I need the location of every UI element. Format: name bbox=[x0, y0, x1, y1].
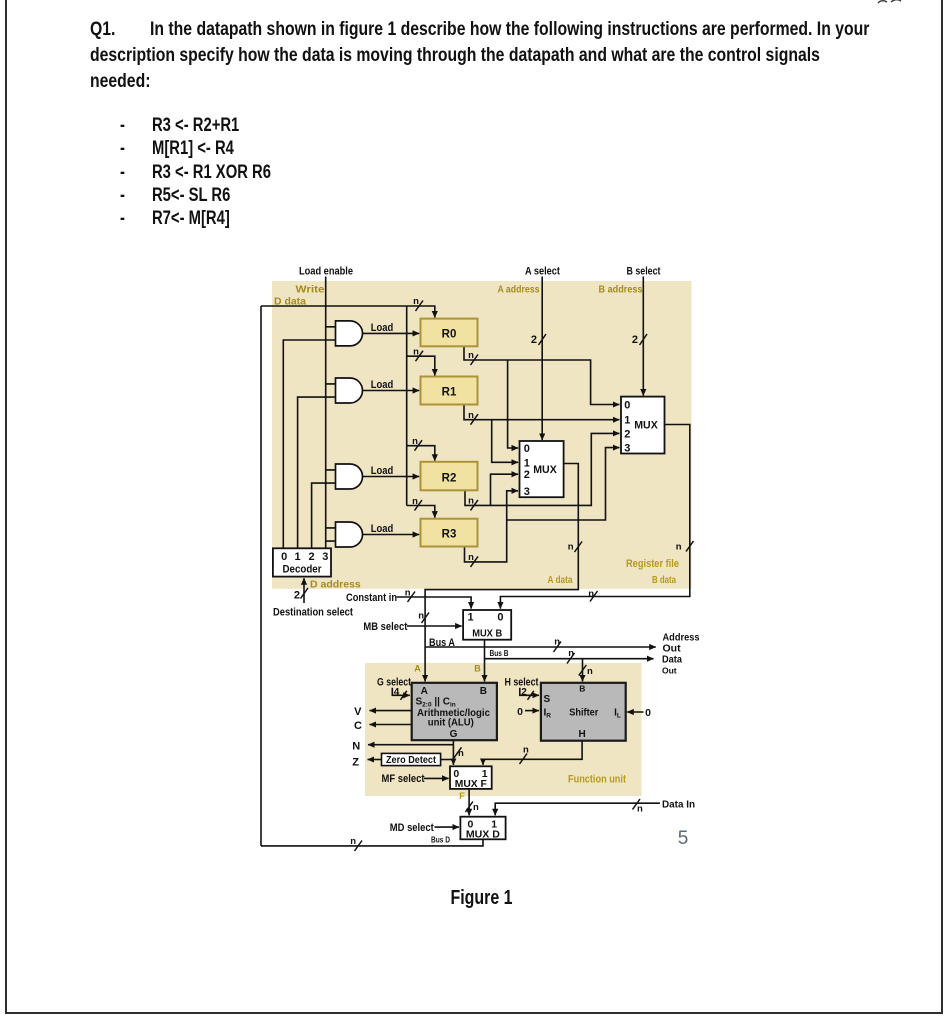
svg-text:B select: B select bbox=[627, 266, 661, 278]
svg-text:R0: R0 bbox=[442, 328, 457, 340]
svg-text:Load: Load bbox=[371, 523, 394, 535]
svg-text:R3: R3 bbox=[442, 529, 457, 541]
svg-text:D address: D address bbox=[310, 579, 361, 591]
svg-text:A: A bbox=[421, 686, 428, 697]
svg-text:0: 0 bbox=[624, 400, 630, 412]
svg-text:D data: D data bbox=[274, 296, 306, 308]
svg-text:B: B bbox=[474, 664, 481, 674]
svg-text:3: 3 bbox=[624, 443, 630, 455]
svg-text:R2: R2 bbox=[442, 473, 457, 485]
svg-text:F: F bbox=[459, 791, 465, 802]
svg-text:MF select: MF select bbox=[382, 773, 425, 785]
svg-text:2: 2 bbox=[531, 334, 537, 346]
svg-text:A data: A data bbox=[548, 575, 573, 586]
svg-text:Load enable: Load enable bbox=[299, 266, 353, 278]
svg-text:R1: R1 bbox=[442, 387, 457, 399]
svg-text:MB select: MB select bbox=[363, 621, 407, 633]
svg-text:1: 1 bbox=[295, 551, 301, 563]
svg-text:n: n bbox=[418, 611, 424, 622]
svg-text:n: n bbox=[458, 748, 464, 759]
svg-text:0: 0 bbox=[517, 706, 523, 718]
svg-text:A address: A address bbox=[498, 284, 540, 296]
svg-text:Data: Data bbox=[662, 654, 682, 666]
svg-text:Z: Z bbox=[352, 757, 359, 769]
svg-text:n: n bbox=[587, 666, 593, 677]
svg-text:1: 1 bbox=[482, 768, 488, 780]
svg-text:MUX F: MUX F bbox=[455, 779, 487, 790]
svg-text:n: n bbox=[468, 410, 474, 421]
svg-text:n: n bbox=[413, 296, 419, 307]
svg-text:0: 0 bbox=[497, 612, 503, 624]
svg-text:2: 2 bbox=[624, 428, 630, 440]
svg-text:n: n bbox=[413, 347, 419, 358]
svg-text:B address: B address bbox=[599, 284, 643, 296]
svg-text:B: B bbox=[579, 684, 585, 694]
svg-text:n: n bbox=[473, 802, 479, 813]
svg-text:0: 0 bbox=[453, 768, 459, 780]
svg-text:Load: Load bbox=[371, 465, 394, 477]
svg-text:MUX: MUX bbox=[634, 419, 658, 431]
svg-text:H: H bbox=[578, 729, 585, 740]
svg-text:Write: Write bbox=[296, 284, 325, 296]
svg-text:2: 2 bbox=[521, 687, 527, 698]
svg-text:Out: Out bbox=[662, 666, 677, 676]
svg-text:2: 2 bbox=[294, 590, 300, 602]
svg-text:Figure 1: Figure 1 bbox=[451, 887, 513, 909]
svg-text:n: n bbox=[468, 552, 474, 563]
svg-text:Bus A: Bus A bbox=[429, 637, 455, 649]
svg-text:Shifter: Shifter bbox=[569, 706, 598, 718]
svg-text:V: V bbox=[354, 706, 362, 718]
svg-text:A: A bbox=[414, 664, 421, 674]
svg-text:Data In: Data In bbox=[662, 799, 695, 811]
svg-text:B: B bbox=[480, 686, 487, 697]
svg-text:N: N bbox=[352, 741, 360, 753]
svg-text:n: n bbox=[568, 648, 574, 659]
svg-text:unit (ALU): unit (ALU) bbox=[428, 718, 474, 729]
svg-text:2: 2 bbox=[524, 469, 530, 481]
svg-text:MD select: MD select bbox=[390, 822, 434, 834]
svg-text:n: n bbox=[554, 637, 560, 648]
svg-text:Destination select: Destination select bbox=[273, 607, 353, 619]
svg-text:1: 1 bbox=[524, 457, 530, 469]
svg-text:G: G bbox=[450, 729, 458, 740]
svg-text:n: n bbox=[637, 804, 643, 815]
svg-text:n: n bbox=[350, 836, 356, 847]
svg-text:n: n bbox=[405, 588, 411, 599]
svg-text:Function unit: Function unit bbox=[568, 774, 626, 786]
svg-text:B data: B data bbox=[652, 575, 676, 586]
svg-text:n: n bbox=[523, 745, 529, 756]
svg-text:5: 5 bbox=[678, 828, 689, 849]
svg-text:Decoder: Decoder bbox=[283, 564, 323, 576]
svg-text:0: 0 bbox=[467, 818, 473, 830]
svg-text:Zero Detect: Zero Detect bbox=[386, 754, 436, 766]
svg-text:1: 1 bbox=[624, 415, 630, 427]
svg-text:n: n bbox=[412, 496, 418, 507]
svg-text:Load: Load bbox=[371, 379, 394, 391]
svg-text:A select: A select bbox=[525, 266, 560, 278]
svg-text:S: S bbox=[544, 694, 551, 705]
svg-text:C: C bbox=[354, 720, 362, 732]
svg-text:n: n bbox=[676, 542, 682, 553]
svg-text:n: n bbox=[468, 350, 474, 361]
svg-text:Load: Load bbox=[371, 322, 394, 334]
svg-text:1: 1 bbox=[467, 612, 473, 624]
svg-text:MUX D: MUX D bbox=[466, 830, 500, 841]
svg-text:2: 2 bbox=[632, 334, 638, 346]
svg-text:2: 2 bbox=[309, 551, 315, 563]
svg-text:0: 0 bbox=[645, 707, 651, 719]
svg-text:Register file: Register file bbox=[626, 558, 679, 570]
svg-text:MUX: MUX bbox=[533, 464, 557, 476]
svg-text:MUX B: MUX B bbox=[472, 629, 502, 640]
svg-text:0: 0 bbox=[524, 443, 530, 455]
svg-text:0: 0 bbox=[281, 551, 287, 563]
svg-text:n: n bbox=[468, 496, 474, 507]
svg-text:Bus B: Bus B bbox=[490, 648, 509, 658]
svg-text:3: 3 bbox=[524, 486, 530, 498]
svg-text:3: 3 bbox=[322, 551, 328, 563]
svg-text:n: n bbox=[568, 542, 574, 553]
svg-text:n: n bbox=[588, 589, 594, 600]
svg-text:Constant in: Constant in bbox=[346, 592, 397, 604]
svg-text:4: 4 bbox=[394, 687, 400, 698]
svg-text:S2:0 || Cin: S2:0 || Cin bbox=[416, 697, 456, 709]
svg-text:n: n bbox=[412, 436, 418, 447]
svg-text:1: 1 bbox=[491, 818, 497, 830]
svg-text:Bus D: Bus D bbox=[431, 835, 450, 845]
